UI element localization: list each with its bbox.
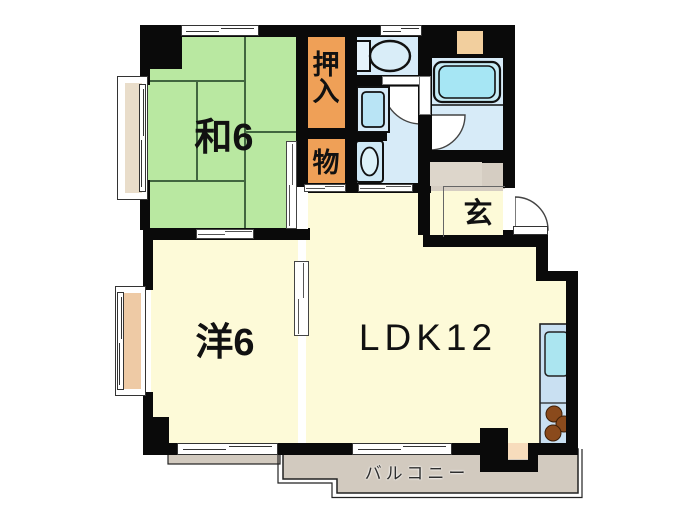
toilet-north-window xyxy=(380,25,422,36)
storage-label: 物 xyxy=(305,143,347,177)
kitchen-sink-icon xyxy=(545,332,568,376)
genkan-upper-step xyxy=(430,162,482,186)
bay-window-sill xyxy=(124,293,141,389)
pillar xyxy=(480,428,508,472)
washbasin-bowl-icon xyxy=(361,148,378,176)
western-ldk-sliding-door xyxy=(294,261,309,336)
western-room-label: 洋6 xyxy=(175,317,275,359)
bay-window-glass xyxy=(117,292,124,390)
balcony-label: バルコニー xyxy=(350,461,484,481)
washing-machine-icon xyxy=(362,92,384,127)
bath-door-swing xyxy=(430,115,465,150)
toilet-tank-icon xyxy=(356,41,370,71)
toilet-bowl-icon xyxy=(370,41,410,71)
japanese-ldk-fusuma xyxy=(286,141,297,229)
oshiire-label: 押入 xyxy=(305,38,343,116)
service-shaft-square xyxy=(457,31,483,54)
japanese-room-north-window xyxy=(181,25,259,36)
stove-burner-icon xyxy=(545,425,561,441)
western-room-bay-window xyxy=(115,286,146,396)
japanese-room-bay-window xyxy=(117,76,148,200)
ldk-label: LDK12 xyxy=(344,317,512,359)
genkan-label: 玄 xyxy=(458,194,498,228)
entrance-door-opening xyxy=(503,189,515,230)
toilet-door-opening xyxy=(382,76,421,85)
bay-window-glass xyxy=(139,84,146,192)
japanese-western-sliding-door xyxy=(196,229,254,239)
storage-sliding-door xyxy=(304,184,346,192)
floor-plan: 和6 押入 物 玄 洋6 LDK12 バルコニー xyxy=(0,0,700,525)
western-room-south-window xyxy=(177,443,278,455)
corner-pillar xyxy=(148,33,182,69)
japanese-room-label: 和6 xyxy=(174,112,274,154)
balcony-step-square xyxy=(508,443,528,459)
entrance-door-leaf xyxy=(513,226,548,235)
japanese-ldk-door-opening xyxy=(297,187,308,229)
bath-door-opening xyxy=(419,76,431,115)
bathtub-inner-icon xyxy=(439,66,495,98)
ldk-south-window xyxy=(352,443,452,455)
washroom-sliding-door xyxy=(358,184,413,192)
